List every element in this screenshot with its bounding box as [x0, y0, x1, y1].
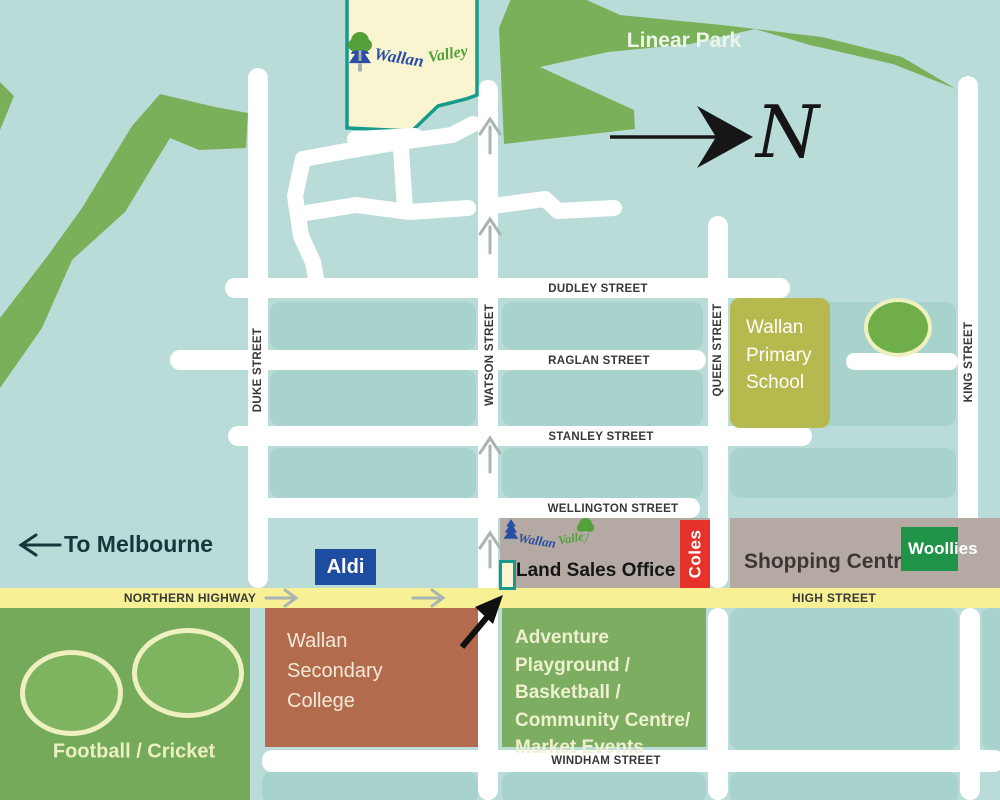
- street-label-king: KING STREET: [963, 322, 975, 403]
- aldi-box: Aldi: [315, 549, 376, 585]
- primary-school-box: Wallan Primary School: [730, 298, 830, 428]
- street-label-raglan: RAGLAN STREET: [548, 355, 650, 367]
- aldi-label: Aldi: [327, 556, 365, 579]
- school-oval-icon: [864, 298, 932, 357]
- green-tree-icon: [348, 32, 372, 62]
- logo-word-wallan: Wallan: [373, 44, 425, 72]
- street-label-high: HIGH STREET: [792, 591, 876, 605]
- linear-park-shape: [499, 0, 956, 144]
- linear-park-label: Linear Park: [627, 29, 741, 53]
- to-melbourne-label: To Melbourne: [64, 531, 213, 558]
- secondary-college-box: Wallan Secondary College: [265, 608, 478, 747]
- primary-school-label: Wallan Primary School: [746, 314, 828, 397]
- street-label-duke: DUKE STREET: [252, 328, 264, 412]
- creek-park-shape: [0, 94, 248, 388]
- woollies-label: Woollies: [908, 539, 978, 559]
- street-label-watson: WATSON STREET: [484, 304, 496, 406]
- coles-label: Coles: [685, 530, 705, 579]
- creek-edge-shape: [0, 82, 14, 130]
- coles-box: Coles: [680, 520, 710, 588]
- estate-roads: [295, 124, 614, 284]
- to-melbourne-arrow-icon: [21, 535, 60, 555]
- street-label-windham: WINDHAM STREET: [551, 755, 661, 767]
- football-cricket-field: [0, 608, 250, 800]
- logo-word-wallan: Wallan: [517, 530, 557, 552]
- football-cricket-label: Football / Cricket: [53, 741, 215, 764]
- land-sales-office-label: Land Sales Office: [516, 560, 675, 582]
- logo-word-valley: Valley: [427, 43, 470, 68]
- street-label-stanley: STANLEY STREET: [548, 431, 653, 443]
- woollies-box: Woollies: [901, 527, 958, 571]
- green-tree-icon: [577, 518, 594, 540]
- shopping-centre-label: Shopping Centre: [744, 550, 913, 574]
- land-sales-marker-icon: [499, 560, 516, 590]
- sports-oval-icon: [20, 650, 123, 736]
- sports-oval-icon: [132, 628, 244, 718]
- wallan-valley-logo: Wallan Valley: [503, 518, 613, 558]
- north-label: N: [756, 96, 819, 168]
- secondary-college-label: Wallan Secondary College: [287, 626, 427, 716]
- playground-box: Adventure Playground / Basketball / Comm…: [502, 608, 706, 747]
- wallan-valley-logo: Wallan Valley: [348, 32, 480, 82]
- street-label-northern-highway: NORTHERN HIGHWAY: [124, 591, 256, 605]
- wallan-valley-map: Linear Park To Melbourne N DUDLEY STREET…: [0, 0, 1000, 800]
- street-label-wellington: WELLINGTON STREET: [548, 503, 679, 515]
- street-label-dudley: DUDLEY STREET: [548, 283, 648, 295]
- street-label-queen: QUEEN STREET: [712, 303, 724, 396]
- playground-label: Adventure Playground / Basketball / Comm…: [515, 624, 703, 762]
